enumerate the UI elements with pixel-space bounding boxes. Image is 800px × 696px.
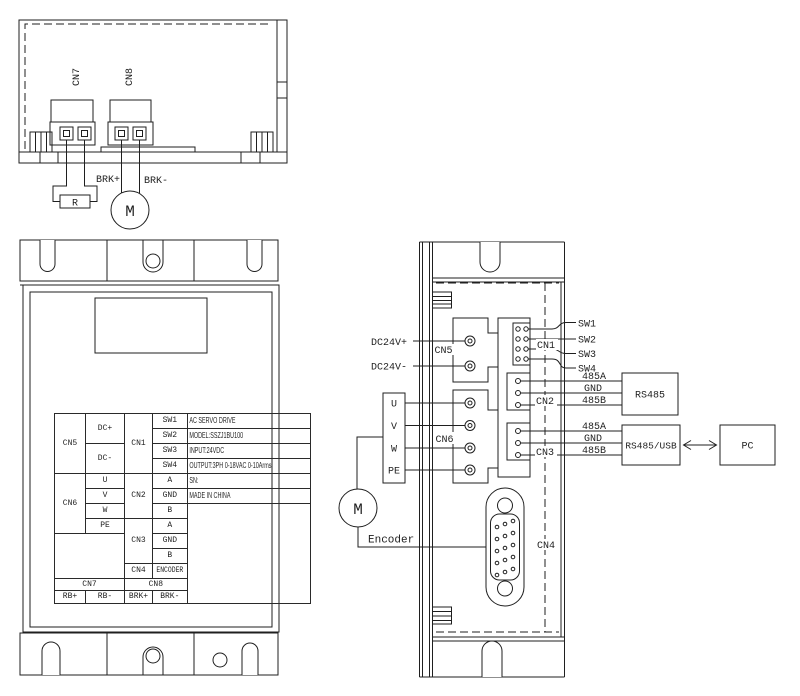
cell-b2: B <box>153 549 188 564</box>
cell-b1: B <box>153 504 188 519</box>
side-cn2-label: CN2 <box>536 397 554 408</box>
display-window <box>95 298 207 353</box>
dc24v-plus-label: DC24V+ <box>371 338 407 349</box>
sw2-label: SW2 <box>578 336 596 347</box>
sw3-label: SW3 <box>578 350 596 361</box>
pc-label: PC <box>741 442 753 453</box>
side-housing <box>420 242 565 677</box>
top-cn8-connector <box>108 100 153 145</box>
cell-cn2: CN2 <box>125 474 153 519</box>
cell-pe: PE <box>86 519 125 534</box>
cell-dc-minus: DC- <box>86 444 125 474</box>
phase-w-label: W <box>391 445 397 456</box>
cell-cn7: CN7 <box>55 579 125 591</box>
brk-plus-label: BRK+ <box>96 175 120 186</box>
side-cn4-label: CN4 <box>537 541 555 552</box>
phase-v-label: V <box>391 422 397 433</box>
side-cn3-label: CN3 <box>536 448 554 459</box>
top-cn7-label: CN7 <box>72 68 83 86</box>
side-cn4-dsub <box>486 488 524 606</box>
cell-u: U <box>86 474 125 489</box>
encoder-label: Encoder <box>368 535 414 547</box>
cell-sw4: SW4 <box>153 459 188 474</box>
cell-cn5: CN5 <box>55 414 86 474</box>
cell-sw1: SW1 <box>153 414 188 429</box>
top-view: CN7 CN8 R M BRK+ BRK- <box>19 20 287 229</box>
dc24v-minus-label: DC24V- <box>371 363 407 374</box>
cn3-485a-label: 485A <box>582 422 606 433</box>
side-cn6-label: CN6 <box>436 435 454 446</box>
phase-u-label: U <box>391 400 397 411</box>
cell-blank-left <box>55 534 125 579</box>
cell-encoder: ENCODER <box>153 564 188 579</box>
sw1-label: SW1 <box>578 320 596 331</box>
brk-minus-label: BRK- <box>144 176 168 187</box>
top-cn7-connector <box>50 100 95 145</box>
front-top-flange <box>20 240 278 285</box>
resistor-label: R <box>72 199 78 210</box>
nameplate-table: CN5 DC+ CN1 SW1 AC SERVO DRIVE SW2 MODEL… <box>54 413 311 604</box>
cn2-485b-label: 485B <box>582 396 606 407</box>
cell-info-5: SN: <box>187 474 311 489</box>
cn3-gnd-label: GND <box>584 434 602 445</box>
rs485-usb-module-label: RS485/USB <box>625 441 677 452</box>
usb-link-arrow <box>684 441 717 450</box>
cell-v: V <box>86 489 125 504</box>
rs485-module-label: RS485 <box>635 391 665 402</box>
cell-a2: A <box>153 519 188 534</box>
cell-gnd1: GND <box>153 489 188 504</box>
cell-w: W <box>86 504 125 519</box>
side-cn5-label: CN5 <box>435 346 453 357</box>
cn3-485b-label: 485B <box>582 446 606 457</box>
side-view: DC24V+ DC24V- CN5 CN6 U V W PE M Enc <box>339 242 775 677</box>
cell-brk-plus: BRK+ <box>125 591 153 604</box>
cell-sw3: SW3 <box>153 444 188 459</box>
top-motor-label: M <box>125 203 135 221</box>
cn2-gnd-label: GND <box>584 384 602 395</box>
servo-drive-wiring-diagram: CN7 CN8 R M BRK+ BRK- <box>0 0 800 696</box>
cell-sw2: SW2 <box>153 429 188 444</box>
side-cn1-label: CN1 <box>537 341 555 352</box>
front-bottom-flange <box>20 633 278 675</box>
phase-pe-label: PE <box>388 467 400 478</box>
cell-info-6: MADE IN CHINA <box>187 489 311 504</box>
cell-brk-minus: BRK- <box>153 591 188 604</box>
side-motor-label: M <box>353 501 363 519</box>
connector-mount-plate <box>498 318 530 477</box>
cell-gnd2: GND <box>153 534 188 549</box>
motor-encoder-wiring <box>339 437 486 547</box>
cell-blank-right <box>187 504 311 604</box>
cell-a1: A <box>153 474 188 489</box>
cn2-485a-label: 485A <box>582 372 606 383</box>
cell-info-4: OUTPUT:3PH 0-18VAC 0-10Arms <box>187 459 311 474</box>
cell-cn3: CN3 <box>125 519 153 564</box>
cell-cn1: CN1 <box>125 414 153 474</box>
cell-cn8: CN8 <box>125 579 188 591</box>
cell-cn4: CN4 <box>125 564 153 579</box>
top-cn8-label: CN8 <box>125 68 136 86</box>
cell-cn6: CN6 <box>55 474 86 534</box>
cell-info-2: MODEL:SSZJ1BU100 <box>187 429 311 444</box>
cell-info-1: AC SERVO DRIVE <box>187 414 311 429</box>
cell-rb-minus: RB- <box>86 591 125 604</box>
cell-info-3: INPUT:24VDC <box>187 444 311 459</box>
cell-dc-plus: DC+ <box>86 414 125 444</box>
cell-rb-plus: RB+ <box>55 591 86 604</box>
